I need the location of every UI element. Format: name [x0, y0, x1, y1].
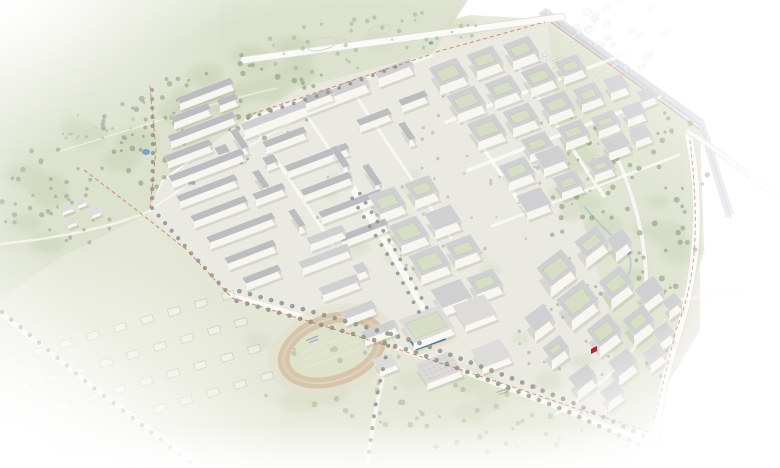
masterplan-svg	[0, 0, 780, 468]
vignette-layer	[0, 0, 780, 468]
masterplan-visualization	[0, 0, 780, 468]
